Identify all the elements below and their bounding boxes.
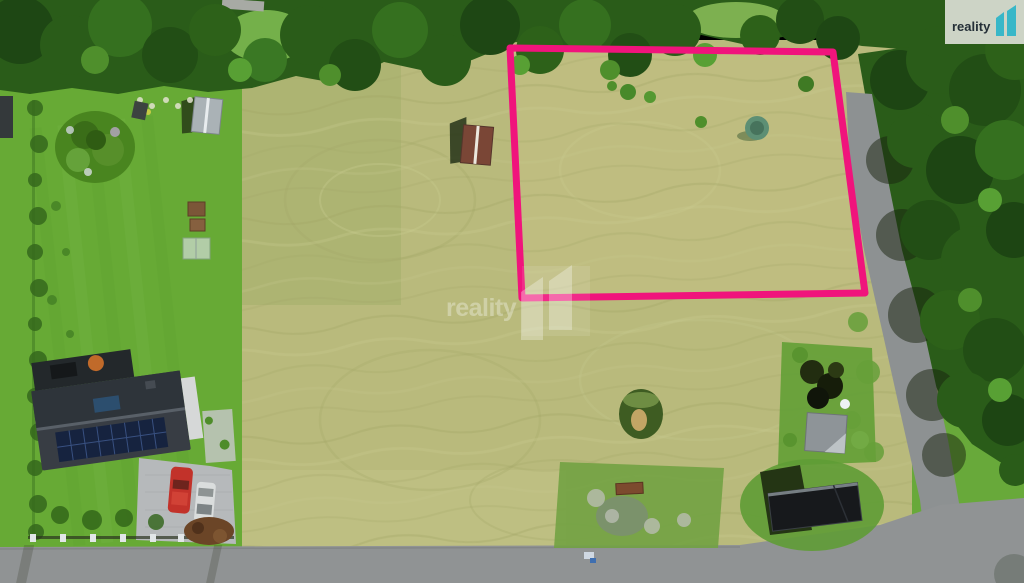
green-patch-bottom	[554, 462, 724, 563]
garden-shed	[178, 95, 223, 137]
aerial-photo: reality reality	[0, 0, 1024, 583]
reality-logo-badge: reality	[945, 0, 1024, 44]
grey-roof-shed	[805, 413, 848, 454]
red-car	[167, 466, 193, 514]
flower-bed	[55, 111, 135, 183]
pond-pit	[619, 389, 663, 439]
white-car	[194, 482, 216, 524]
black-container-area	[740, 459, 884, 551]
left-edge-structure	[0, 96, 13, 138]
wood-plank	[616, 482, 644, 494]
watermark-text: reality	[446, 294, 517, 322]
storage-corner	[778, 342, 876, 466]
greenhouse	[183, 238, 210, 259]
patio-pavers	[202, 409, 236, 463]
logo-text: reality	[952, 19, 991, 34]
brown-hedge	[184, 517, 234, 545]
raised-beds	[188, 202, 205, 231]
white-ball	[840, 399, 850, 409]
